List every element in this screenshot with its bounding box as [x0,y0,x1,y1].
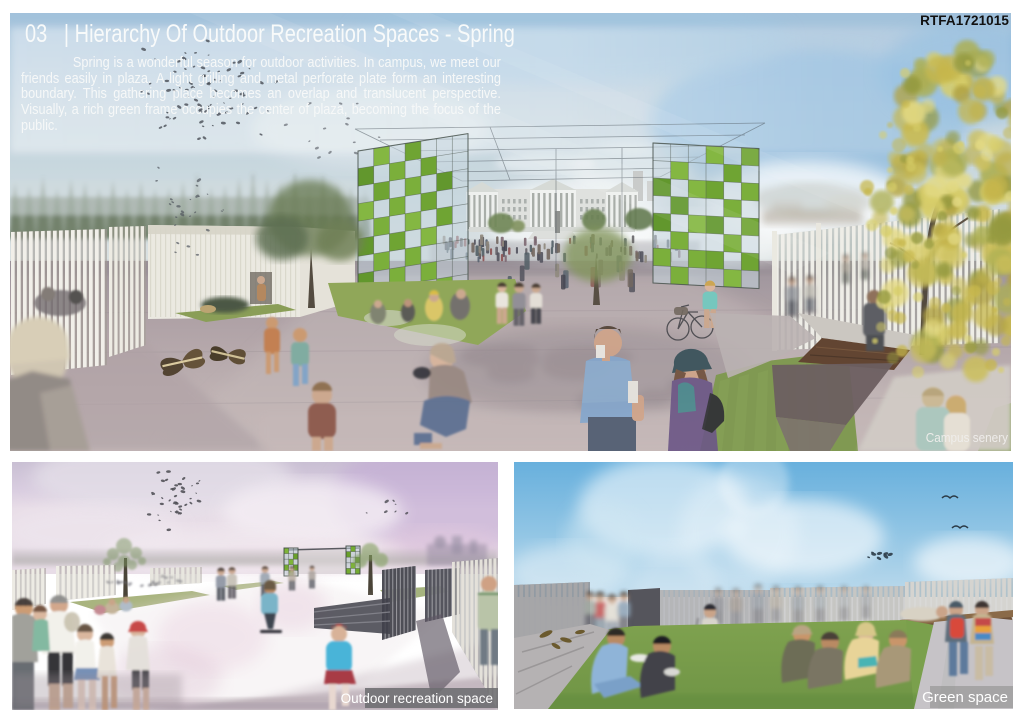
svg-text:Green space: Green space [922,689,1008,706]
svg-text:Outdoor recreation space: Outdoor recreation space [341,691,493,706]
